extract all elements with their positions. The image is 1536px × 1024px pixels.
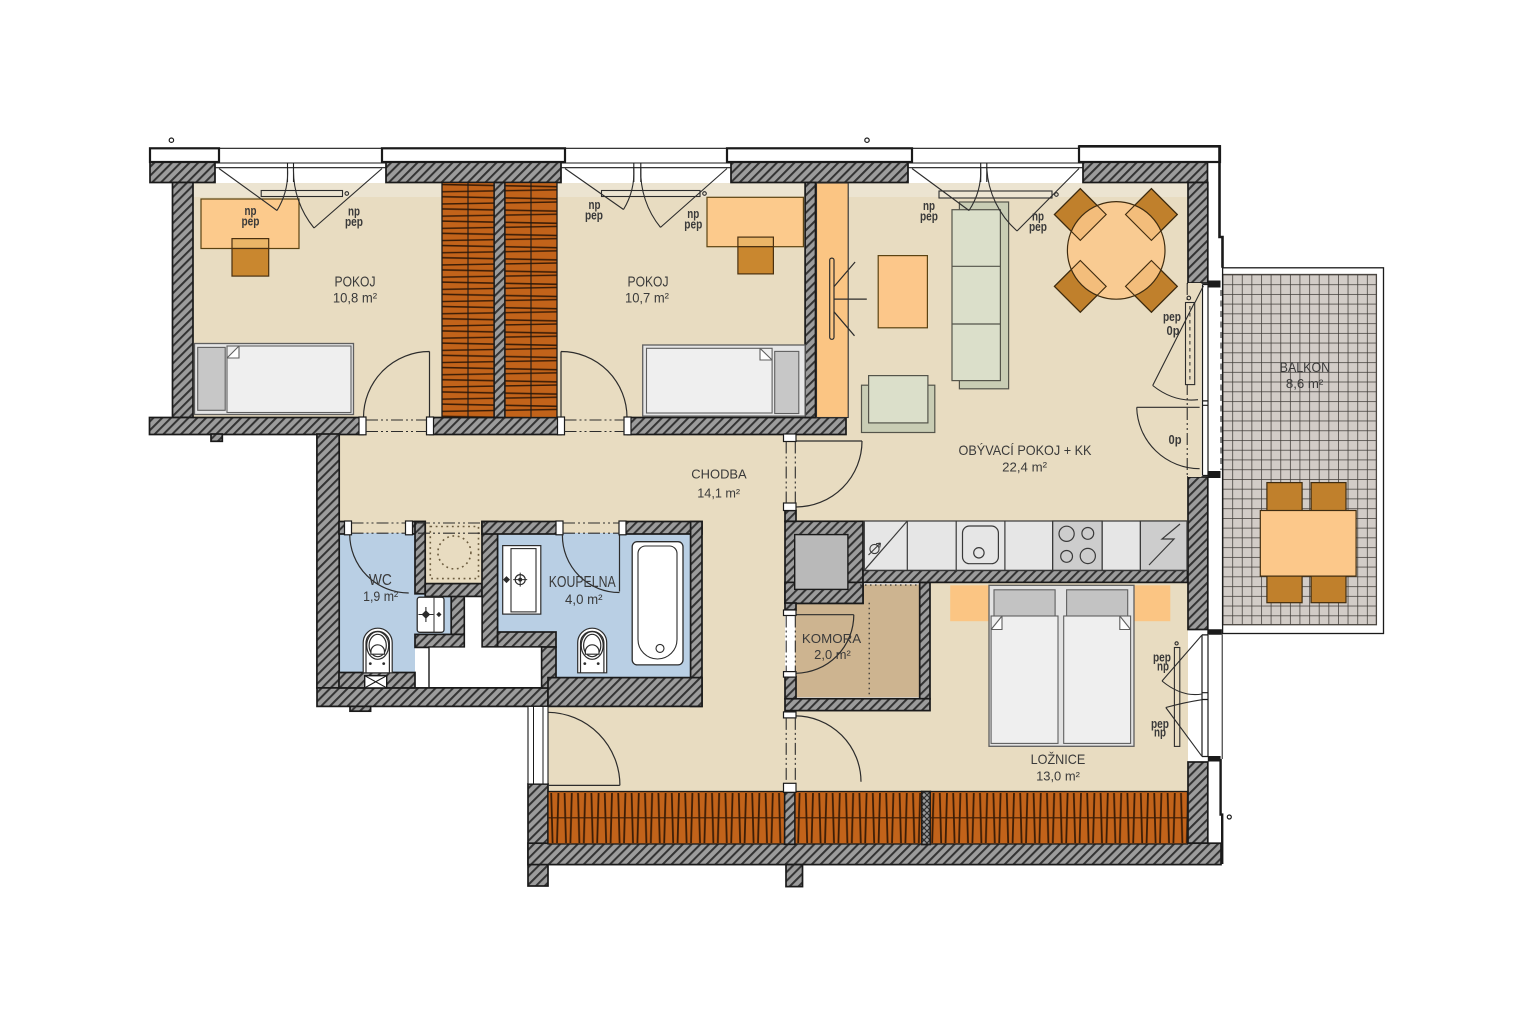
svg-text:BALKON: BALKON — [1280, 360, 1331, 375]
svg-text:LOŽNICE: LOŽNICE — [1031, 752, 1086, 767]
svg-text:14,1 m²: 14,1 m² — [697, 486, 741, 501]
svg-text:0p: 0p — [1167, 323, 1180, 338]
svg-text:pep: pep — [684, 217, 702, 232]
svg-text:OBÝVACÍ POKOJ + KK: OBÝVACÍ POKOJ + KK — [959, 442, 1093, 458]
svg-text:pep: pep — [242, 214, 260, 229]
svg-text:CHODBA: CHODBA — [691, 466, 747, 481]
svg-text:22,4 m²: 22,4 m² — [1002, 460, 1047, 475]
svg-text:POKOJ: POKOJ — [628, 275, 669, 291]
svg-text:0p: 0p — [1169, 432, 1182, 447]
svg-text:pep: pep — [585, 208, 603, 223]
svg-text:13,0 m²: 13,0 m² — [1036, 768, 1080, 783]
svg-text:pep: pep — [345, 214, 363, 229]
svg-text:WC: WC — [369, 572, 392, 589]
svg-text:1,9 m²: 1,9 m² — [363, 588, 398, 604]
svg-text:pep: pep — [920, 209, 938, 224]
svg-text:np: np — [1157, 659, 1169, 674]
svg-text:np: np — [1154, 725, 1166, 740]
svg-text:POKOJ: POKOJ — [335, 275, 376, 291]
svg-text:4,0 m²: 4,0 m² — [565, 591, 603, 607]
svg-text:KOUPELNA: KOUPELNA — [549, 574, 617, 591]
svg-text:10,8 m²: 10,8 m² — [333, 290, 378, 306]
svg-text:2,0 m²: 2,0 m² — [814, 648, 851, 662]
svg-text:KOMORA: KOMORA — [802, 631, 862, 646]
svg-text:8,6 m²: 8,6 m² — [1286, 376, 1324, 391]
svg-text:pep: pep — [1163, 309, 1181, 324]
svg-text:pep: pep — [1029, 219, 1047, 234]
svg-text:10,7 m²: 10,7 m² — [625, 290, 669, 306]
